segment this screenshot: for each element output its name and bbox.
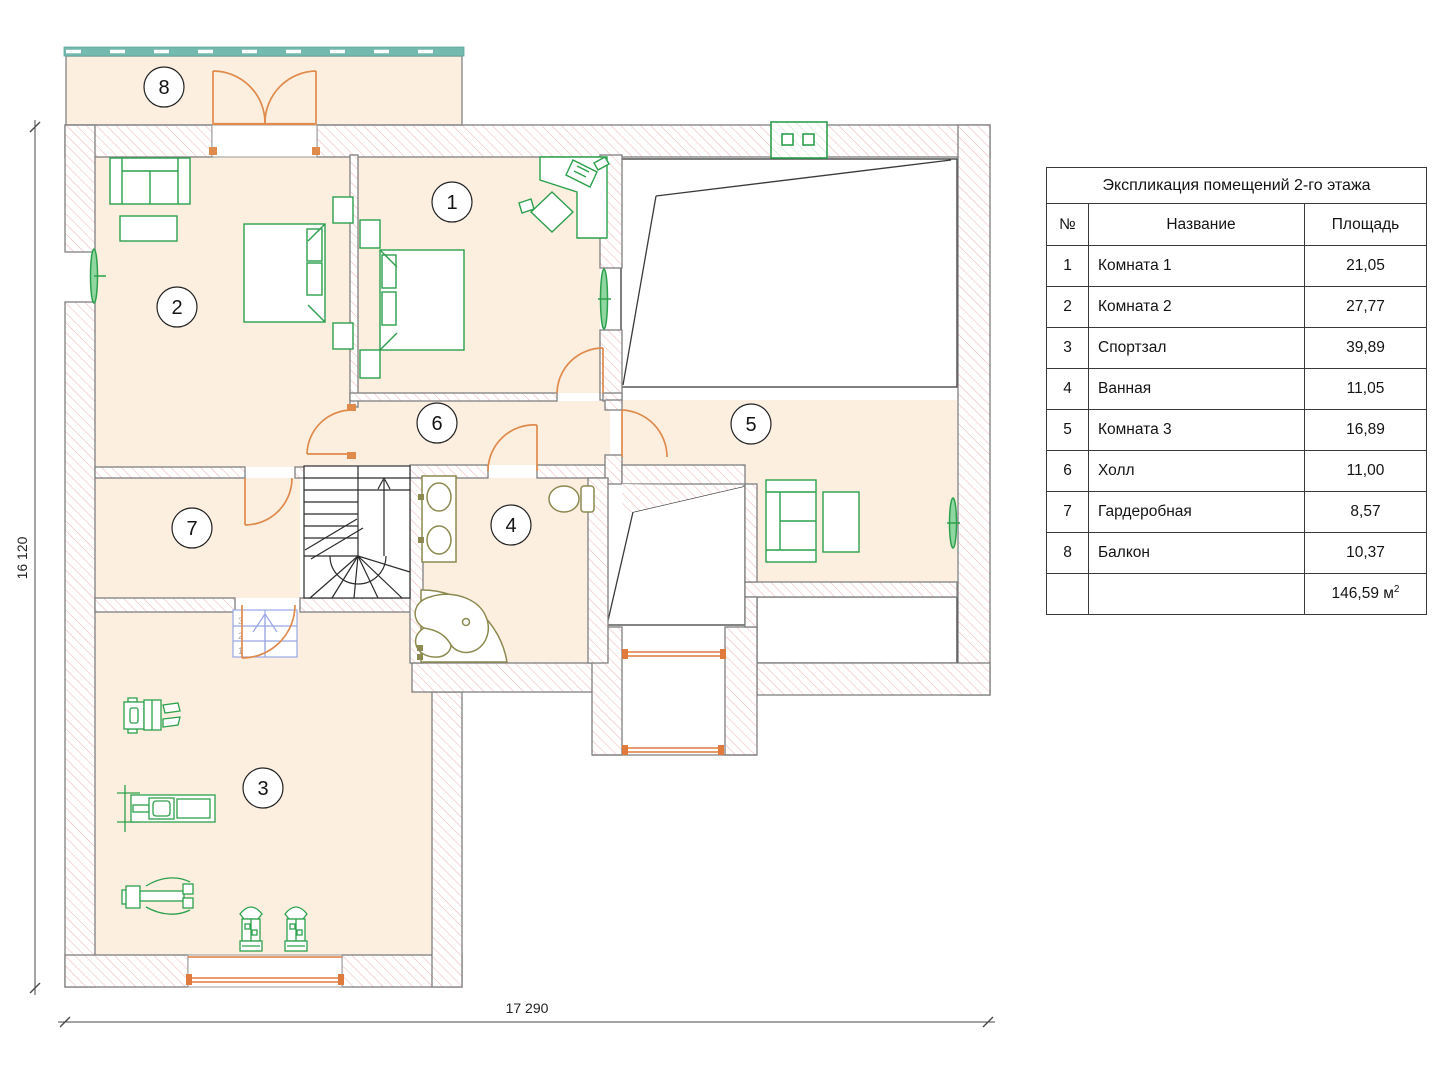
legend-header-name: Название bbox=[1089, 204, 1305, 246]
room-marker-1: 1 bbox=[432, 182, 472, 222]
legend-row: 5 Комната 3 16,89 bbox=[1047, 410, 1427, 451]
dimension-bottom: 17 290 bbox=[58, 1000, 995, 1027]
window-gym-bottom bbox=[186, 955, 344, 987]
legend-num: 4 bbox=[1047, 369, 1089, 410]
legend-total-empty bbox=[1047, 574, 1089, 615]
void-below-room5 bbox=[757, 597, 957, 663]
nightstand bbox=[333, 197, 353, 223]
legend-num: 7 bbox=[1047, 492, 1089, 533]
svg-text:5: 5 bbox=[745, 414, 756, 436]
room-marker-2: 2 bbox=[157, 287, 197, 327]
svg-text:16 120: 16 120 bbox=[14, 536, 30, 579]
legend-total-empty bbox=[1089, 574, 1305, 615]
void-top-right bbox=[621, 159, 957, 387]
legend-name: Ванная bbox=[1089, 369, 1305, 410]
stepper-2 bbox=[285, 907, 307, 951]
legend-row: 3 Спортзал 39,89 bbox=[1047, 328, 1427, 369]
legend-num: 3 bbox=[1047, 328, 1089, 369]
legend-table: Экспликация помещений 2-го этажа № Назва… bbox=[1046, 167, 1427, 615]
svg-text:1: 1 bbox=[446, 192, 457, 214]
legend-name: Комната 3 bbox=[1089, 410, 1305, 451]
toilet bbox=[549, 486, 594, 512]
legend-total-row: 146,59 м2 bbox=[1047, 574, 1427, 615]
room-marker-7: 7 bbox=[172, 508, 212, 548]
legend-name: Комната 2 bbox=[1089, 287, 1305, 328]
staircase bbox=[304, 466, 410, 598]
legend-area: 11,00 bbox=[1305, 451, 1427, 492]
room-marker-3: 3 bbox=[243, 768, 283, 808]
room-marker-4: 4 bbox=[491, 505, 531, 545]
legend-total-sup: 2 bbox=[1394, 584, 1400, 595]
sofa-room2 bbox=[110, 158, 190, 204]
bed-room2 bbox=[244, 224, 325, 322]
legend-row: 7 Гардеробная 8,57 bbox=[1047, 492, 1427, 533]
legend-name: Комната 1 bbox=[1089, 246, 1305, 287]
legend-area: 21,05 bbox=[1305, 246, 1427, 287]
legend-title: Экспликация помещений 2-го этажа bbox=[1047, 168, 1427, 204]
legend-area: 11,05 bbox=[1305, 369, 1427, 410]
svg-text:3: 3 bbox=[257, 778, 268, 800]
legend-total-value: 146,59 м bbox=[1332, 586, 1394, 603]
legend-title-row: Экспликация помещений 2-го этажа bbox=[1047, 168, 1427, 204]
legend-num: 8 bbox=[1047, 533, 1089, 574]
svg-text:7: 7 bbox=[186, 518, 197, 540]
legend-row: 8 Балкон 10,37 bbox=[1047, 533, 1427, 574]
legend-row: 1 Комната 1 21,05 bbox=[1047, 246, 1427, 287]
legend-row: 4 Ванная 11,05 bbox=[1047, 369, 1427, 410]
furniture-room5 bbox=[766, 480, 859, 562]
svg-text:6: 6 bbox=[431, 413, 442, 435]
svg-text:8: 8 bbox=[158, 77, 169, 99]
legend-area: 16,89 bbox=[1305, 410, 1427, 451]
nightstand bbox=[360, 220, 380, 248]
legend-name: Холл bbox=[1089, 451, 1305, 492]
bed-room1 bbox=[380, 250, 464, 350]
nightstand bbox=[360, 350, 380, 378]
nightstand bbox=[333, 323, 353, 349]
legend-table-container: Экспликация помещений 2-го этажа № Назва… bbox=[1046, 167, 1427, 615]
legend-num: 6 bbox=[1047, 451, 1089, 492]
svg-text:17 290: 17 290 bbox=[506, 1000, 549, 1016]
legend-num: 5 bbox=[1047, 410, 1089, 451]
svg-text:4: 4 bbox=[505, 515, 516, 537]
table-room5 bbox=[823, 492, 859, 552]
legend-header-num: № bbox=[1047, 204, 1089, 246]
legend-header-row: № Название Площадь bbox=[1047, 204, 1427, 246]
double-sink bbox=[418, 476, 456, 562]
room-marker-6: 6 bbox=[417, 403, 457, 443]
dimension-left: 16 120 bbox=[14, 120, 40, 995]
legend-area: 8,57 bbox=[1305, 492, 1427, 533]
legend-name: Спортзал bbox=[1089, 328, 1305, 369]
legend-header-area: Площадь bbox=[1305, 204, 1427, 246]
legend-area: 39,89 bbox=[1305, 328, 1427, 369]
chimney bbox=[771, 122, 827, 158]
coffee-table-room2 bbox=[120, 216, 177, 241]
room-marker-8: 8 bbox=[144, 67, 184, 107]
legend-num: 2 bbox=[1047, 287, 1089, 328]
legend-total-area: 146,59 м2 bbox=[1305, 574, 1427, 615]
sofa-room5 bbox=[766, 480, 816, 562]
legend-row: 2 Комната 2 27,77 bbox=[1047, 287, 1427, 328]
legend-row: 6 Холл 11,00 bbox=[1047, 451, 1427, 492]
legend-name: Балкон bbox=[1089, 533, 1305, 574]
stepper-1 bbox=[240, 907, 262, 951]
legend-area: 10,37 bbox=[1305, 533, 1427, 574]
room-marker-5: 5 bbox=[731, 404, 771, 444]
legend-num: 1 bbox=[1047, 246, 1089, 287]
svg-text:2: 2 bbox=[171, 297, 182, 319]
legend-area: 27,77 bbox=[1305, 287, 1427, 328]
dormer-interior bbox=[622, 627, 725, 755]
page: { "plan": { "room_labels": ["1","2","3",… bbox=[0, 0, 1440, 1080]
legend-name: Гардеробная bbox=[1089, 492, 1305, 533]
